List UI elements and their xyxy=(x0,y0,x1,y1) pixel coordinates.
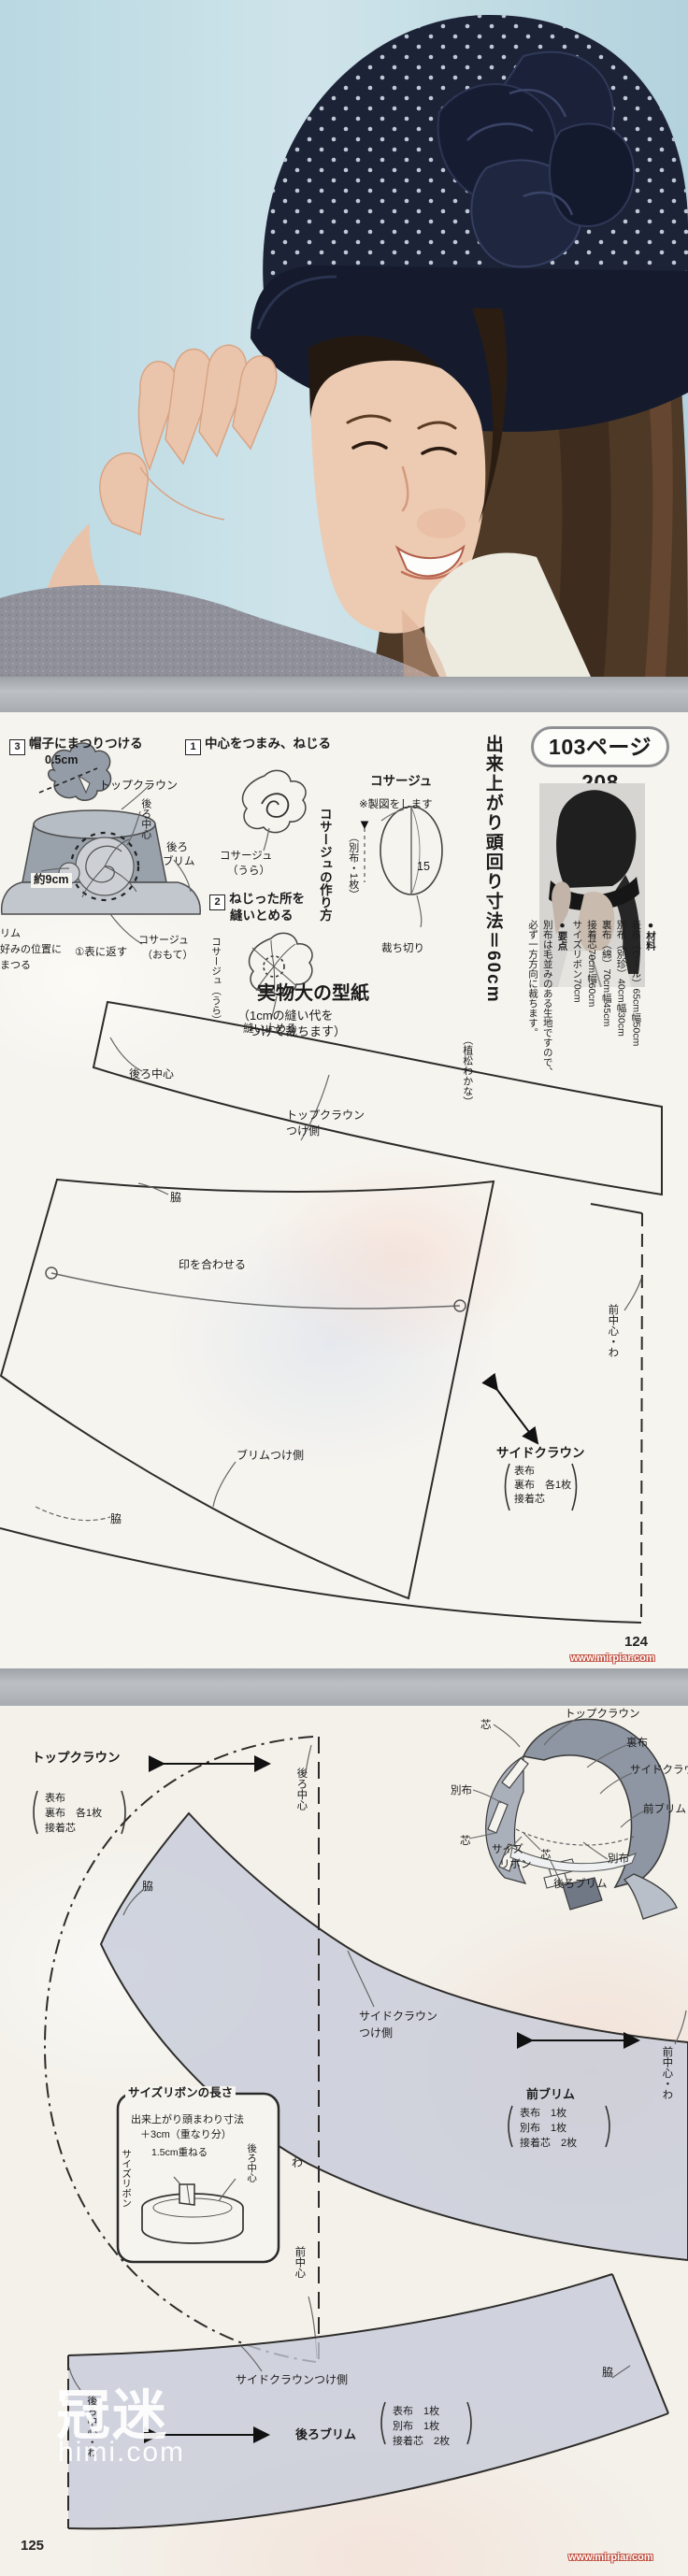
ribbon-name-vertical: サイズリボン xyxy=(120,2149,132,2242)
label-side-seam-1: 脇 xyxy=(170,1191,181,1205)
piece-corner xyxy=(591,1204,642,1213)
label-fold: わ xyxy=(292,2156,303,2170)
label-position: 好みの位置に xyxy=(0,944,62,957)
page-divider-middle xyxy=(0,1668,688,1706)
backbrim-name: 後ろブリム xyxy=(295,2427,356,2442)
designer-credit: （植松わかな） xyxy=(460,1035,473,1106)
step1-caption-1: コサージュ xyxy=(220,850,272,863)
sidecrown-parts-1: 表布 xyxy=(514,1466,535,1479)
label-backbrim-1: 後ろ xyxy=(166,841,188,854)
topcrown-parts-2: 裏布 各1枚 xyxy=(45,1808,102,1821)
label-9cm: 約9cm xyxy=(31,873,72,888)
pattern-subtitle-1: （1cmの縫い代を xyxy=(237,1009,334,1023)
callout-line xyxy=(138,1183,168,1195)
label-brim-side: ブリムつけ側 xyxy=(236,1449,304,1463)
sidecrown-parts-3: 接着芯 xyxy=(514,1494,545,1507)
label-side-seam-2: 脇 xyxy=(110,1512,122,1526)
backbrim-parts-2: 別布 1枚 xyxy=(393,2421,439,2434)
step2-number: 2 xyxy=(209,894,225,910)
label-05cm: 0.5cm xyxy=(45,753,78,768)
topcrown-parts-3: 接着芯 xyxy=(45,1823,76,1836)
label-topcrown-side-1: トップクラウン xyxy=(286,1109,365,1123)
pattern-title: 実物大の型紙 xyxy=(224,982,402,1006)
label-front-center-125: 前中心 xyxy=(293,2246,306,2297)
frontbrim-parts-2: 別布 1枚 xyxy=(520,2123,566,2136)
hat-label-contrast-1: 別布 xyxy=(451,1784,472,1797)
draft-title: コサージュ xyxy=(370,774,432,790)
label-corsage-front-1: コサージュ xyxy=(138,935,189,948)
backbrim-parts-3: 接着芯 2枚 xyxy=(393,2436,450,2449)
front-center-foldline xyxy=(641,1213,642,1623)
callout-line xyxy=(624,1279,641,1310)
corsage-howto-heading: コサージュの作り方 xyxy=(316,808,332,957)
frontbrim-parts-3: 接着芯 2枚 xyxy=(520,2138,577,2151)
cheek-blush xyxy=(417,508,466,538)
ribbon-box-line-2: ＋3cm（重なり分） xyxy=(140,2129,232,2142)
label-topcrown-side-2: つけ側 xyxy=(286,1124,320,1138)
label-back-center-125: 後ろ中心 xyxy=(294,1767,308,1825)
callout-line xyxy=(213,1462,236,1507)
hat-label-ribbon-2: リボン xyxy=(499,1858,532,1871)
photo-section xyxy=(0,0,688,677)
pattern-piece-crownband xyxy=(93,1002,662,1195)
topcrown-parts-1: 表布 xyxy=(45,1793,65,1806)
hat-label-sidecrown: サイドクラウン xyxy=(630,1764,688,1777)
match-line xyxy=(51,1273,460,1309)
pattern-piece-sidecrown-b xyxy=(0,1528,641,1623)
callout-line xyxy=(36,1507,110,1521)
step1-caption-2: （うら） xyxy=(227,865,270,878)
label-match-marks: 印を合わせる xyxy=(176,1258,249,1272)
label-sidecrown-name: サイドクラウン xyxy=(496,1446,585,1462)
ribbon-box-line-1: 出来上がり頭まわり寸法 xyxy=(131,2114,244,2127)
step2-title-1: 2ねじった所を xyxy=(209,892,305,910)
page-124: 3帽子にまつりつける 1中心をつまみ、ねじる 0.5cm トップクラウン 後ろ中… xyxy=(0,712,688,1668)
model-photo xyxy=(0,0,688,677)
corsage-draft-diagram xyxy=(365,807,442,927)
hat-label-frontbrim: 前ブリム xyxy=(643,1803,686,1816)
label-corsage-front-2: （おもて） xyxy=(142,950,193,963)
callout-line xyxy=(675,2011,686,2044)
hat-label-core-2: 芯 xyxy=(460,1835,471,1848)
draft-fabric: （別布・1枚） xyxy=(346,832,359,972)
frontbrim-name: 前ブリム xyxy=(526,2087,575,2102)
ribbon-box-title: サイズリボンの長さ xyxy=(125,2086,236,2101)
label-back-center: 後ろ中心 xyxy=(129,1067,174,1081)
page-reference-pill: 103ページ208 xyxy=(531,726,669,767)
hat-label-backbrim: 後ろブリム xyxy=(553,1878,608,1891)
draft-dimension: 15 xyxy=(417,860,430,875)
frontbrim-parts-1: 表布 1枚 xyxy=(520,2108,566,2121)
hat-label-contrast-2: 別布 xyxy=(608,1853,629,1866)
page-number-125: 125 xyxy=(21,2538,44,2554)
topcrown-name: トップクラウン xyxy=(32,1751,121,1767)
page-divider-top xyxy=(0,677,688,712)
label-brim-fragment: リム xyxy=(0,928,21,941)
frontbrim-attach-2: つけ側 xyxy=(359,2026,393,2040)
label-topcrown: トップクラウン xyxy=(99,779,178,793)
backbrim-side-seam: 脇 xyxy=(602,2366,613,2380)
step1-title: 1中心をつまみ、ねじる xyxy=(185,737,331,755)
watermark-site-125: www.mirpiar.com xyxy=(568,2552,653,2563)
label-turn-out: ①表に返す xyxy=(75,946,127,959)
pattern-sheet-124 xyxy=(0,981,688,1668)
pattern-subtitle-2: つけて裁ちます） xyxy=(249,1024,346,1039)
frontbrim-front-fold: 前中心・わ xyxy=(660,2046,673,2130)
corsage-twist-diagram xyxy=(243,770,307,851)
backbrim-attach: サイドクラウンつけ側 xyxy=(236,2373,348,2387)
magazine-scan: 3帽子にまつりつける 1中心をつまみ、ねじる 0.5cm トップクラウン 後ろ中… xyxy=(0,0,688,2576)
sidecrown-parts-2: 裏布 各1枚 xyxy=(514,1480,571,1493)
label-slipstitch: まつる xyxy=(0,960,31,973)
page-125: トップクラウン 表布 裏布 各1枚 接着芯 後ろ中心 わ 前中心 トップクラウン… xyxy=(0,1706,688,2576)
hat-label-core-3: 芯 xyxy=(540,1849,552,1862)
ribbon-overlap: 1.5cm重ねる xyxy=(151,2147,208,2159)
step3-number: 3 xyxy=(9,739,25,755)
ribbon-back-center: 後ろ中心 xyxy=(245,2143,257,2201)
watermark-site-124: www.mirpiar.com xyxy=(570,1653,655,1664)
pattern-piece-sidecrown-a xyxy=(1,1180,494,1598)
step3-title: 3帽子にまつりつける xyxy=(9,737,143,755)
step1-number: 1 xyxy=(185,739,201,755)
draft-note: ※製図をします xyxy=(359,798,433,811)
callout-line xyxy=(110,1038,142,1071)
label-backbrim-2: ブリム xyxy=(163,855,195,868)
hat-label-core-1: 芯 xyxy=(480,1719,492,1732)
label-backcenter: 後ろ中心 xyxy=(138,798,151,847)
hat-label-topcrown: トップクラウン xyxy=(565,1708,640,1721)
hat-label-lining: 裏布 xyxy=(626,1737,648,1750)
frontbrim-side-seam: 脇 xyxy=(142,1880,153,1894)
step2-title-2: 縫いとめる xyxy=(230,909,294,924)
label-front-center-fold: 前中心・わ xyxy=(606,1304,619,1388)
page-number-124: 124 xyxy=(624,1634,648,1650)
grainline-arrow xyxy=(497,1390,537,1443)
draft-cut: 裁ち切り xyxy=(381,942,424,955)
watermark-domain: himi.com xyxy=(58,2437,185,2469)
backbrim-parts-1: 表布 1枚 xyxy=(393,2406,439,2419)
frontbrim-attach-1: サイドクラウン xyxy=(359,2010,437,2024)
hat-label-ribbon-1: サイズ xyxy=(492,1843,523,1856)
